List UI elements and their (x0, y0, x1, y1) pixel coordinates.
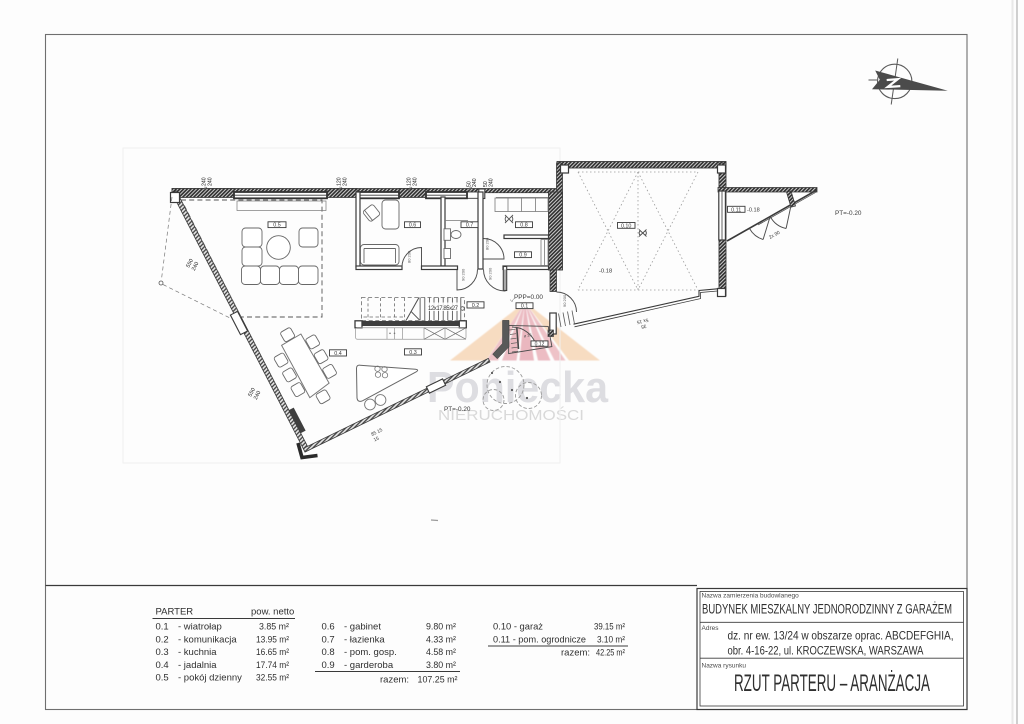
svg-text:32.55 m²: 32.55 m² (256, 673, 289, 684)
svg-text:90 200: 90 200 (562, 294, 567, 307)
svg-text:39.15 m²: 39.15 m² (594, 622, 625, 633)
svg-text:12x17.85x27: 12x17.85x27 (428, 306, 459, 312)
svg-text:0.10 - garaż: 0.10 - garaż (493, 622, 543, 633)
svg-text:3.10 m²: 3.10 m² (597, 634, 625, 645)
svg-text:0.7: 0.7 (466, 223, 474, 229)
svg-text:- pokój dzienny: - pokój dzienny (178, 673, 242, 684)
svg-text:PT=-0.20: PT=-0.20 (444, 406, 471, 413)
svg-text:3.85 m²: 3.85 m² (259, 622, 289, 633)
svg-text:obr. 4-16-22, ul. KROCZEWSKA,: obr. 4-16-22, ul. KROCZEWSKA, WARSZAWA (728, 644, 924, 658)
svg-text:0.2: 0.2 (156, 634, 169, 645)
svg-text:90 200: 90 200 (488, 267, 493, 280)
svg-text:- wiatrołap: - wiatrołap (178, 622, 222, 633)
svg-text:13.95 m²: 13.95 m² (256, 634, 289, 645)
svg-text:PPP=0.00: PPP=0.00 (514, 294, 543, 301)
svg-text:- pom. gosp.: - pom. gosp. (344, 647, 397, 658)
svg-text:0.1: 0.1 (156, 622, 169, 633)
svg-text:0.9: 0.9 (519, 253, 527, 259)
svg-text:- komunikacja: - komunikacja (178, 634, 237, 645)
svg-text:4.33 m²: 4.33 m² (426, 634, 456, 645)
svg-text:razem:: razem: (561, 648, 590, 659)
svg-text:240: 240 (413, 177, 419, 186)
svg-text:dz. nr ew. 13/24 w obszarze op: dz. nr ew. 13/24 w obszarze oprac. ABCDE… (728, 629, 954, 643)
svg-text:0.1: 0.1 (521, 304, 529, 310)
svg-text:80 200: 80 200 (485, 237, 490, 250)
svg-text:0.11 - pom. ogrodnicze: 0.11 - pom. ogrodnicze (493, 634, 586, 645)
svg-text:razem:: razem: (380, 675, 409, 686)
svg-text:-0.18: -0.18 (747, 208, 760, 214)
svg-text:PARTER: PARTER (156, 607, 194, 618)
svg-text:- garderoba: - garderoba (344, 660, 394, 671)
svg-text:BUDYNEK MIESZKALNY JEDNORODZIN: BUDYNEK MIESZKALNY JEDNORODZINNY Z GARAŻ… (702, 602, 952, 617)
svg-text:240: 240 (472, 178, 478, 187)
svg-text:16.65 m²: 16.65 m² (256, 647, 289, 658)
svg-text:0.5: 0.5 (273, 223, 281, 229)
svg-text:0.3: 0.3 (409, 350, 417, 356)
svg-text:0.3: 0.3 (156, 647, 169, 658)
svg-text:107.25 m²: 107.25 m² (418, 675, 458, 686)
svg-text:0.5: 0.5 (156, 673, 169, 684)
svg-text:0.6: 0.6 (322, 622, 335, 633)
svg-text:PT=-0.20: PT=-0.20 (835, 210, 862, 217)
svg-text:ø 35: ø 35 (523, 332, 533, 338)
svg-text:- łazienka: - łazienka (344, 634, 385, 645)
svg-text:0.12: 0.12 (535, 342, 545, 348)
svg-text:0.4: 0.4 (156, 660, 169, 671)
svg-text:- jadalnia: - jadalnia (178, 660, 217, 671)
svg-text:- kuchnia: - kuchnia (178, 647, 217, 658)
svg-text:-0.18: -0.18 (599, 269, 612, 275)
svg-text:- gabinet: - gabinet (344, 622, 381, 633)
svg-text:pow. netto: pow. netto (251, 607, 294, 618)
svg-text:0.11: 0.11 (731, 207, 741, 213)
svg-text:Nazwa zamierzenia budowlanego: Nazwa zamierzenia budowlanego (702, 593, 800, 600)
svg-text:17.74 m²: 17.74 m² (256, 660, 289, 671)
svg-text:0.9: 0.9 (322, 660, 335, 671)
svg-text:Nazwa rysunku: Nazwa rysunku (702, 663, 747, 670)
svg-text:0.7: 0.7 (322, 634, 335, 645)
svg-text:9.80 m²: 9.80 m² (426, 622, 456, 633)
svg-text:RZUT PARTERU – ARANŻACJA: RZUT PARTERU – ARANŻACJA (734, 670, 930, 697)
svg-text:35: 35 (640, 323, 647, 330)
svg-text:240: 240 (343, 177, 349, 186)
svg-text:0.8: 0.8 (322, 647, 335, 658)
svg-text:0.4: 0.4 (334, 351, 342, 357)
svg-text:240: 240 (489, 178, 495, 187)
svg-text:Adres: Adres (702, 625, 720, 632)
svg-text:3.80 m²: 3.80 m² (426, 660, 456, 671)
svg-text:Poniecka: Poniecka (427, 363, 608, 412)
svg-text:0.6: 0.6 (409, 223, 417, 229)
svg-text:42.25 m²: 42.25 m² (596, 648, 625, 659)
svg-text:240: 240 (208, 177, 214, 186)
svg-text:2x 90: 2x 90 (768, 230, 781, 241)
svg-text:4.58 m²: 4.58 m² (426, 647, 456, 658)
svg-text:0.8: 0.8 (520, 223, 528, 229)
svg-text:0.2: 0.2 (472, 303, 480, 309)
svg-text:80 200: 80 200 (407, 250, 412, 263)
svg-text:0.10: 0.10 (621, 223, 632, 229)
svg-text:90 200: 90 200 (461, 268, 466, 281)
